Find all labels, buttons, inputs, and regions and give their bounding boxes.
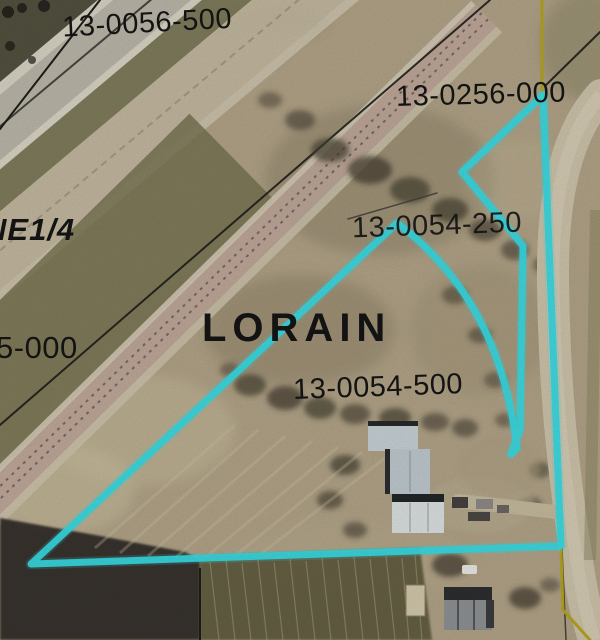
photo-grain-overlay [0,0,600,640]
map-canvas[interactable]: 13-0056-500 13-0256-000 13-0054-250 13-0… [0,0,600,640]
aerial-parcel-map[interactable]: 13-0056-500 13-0256-000 13-0054-250 13-0… [0,0,600,640]
